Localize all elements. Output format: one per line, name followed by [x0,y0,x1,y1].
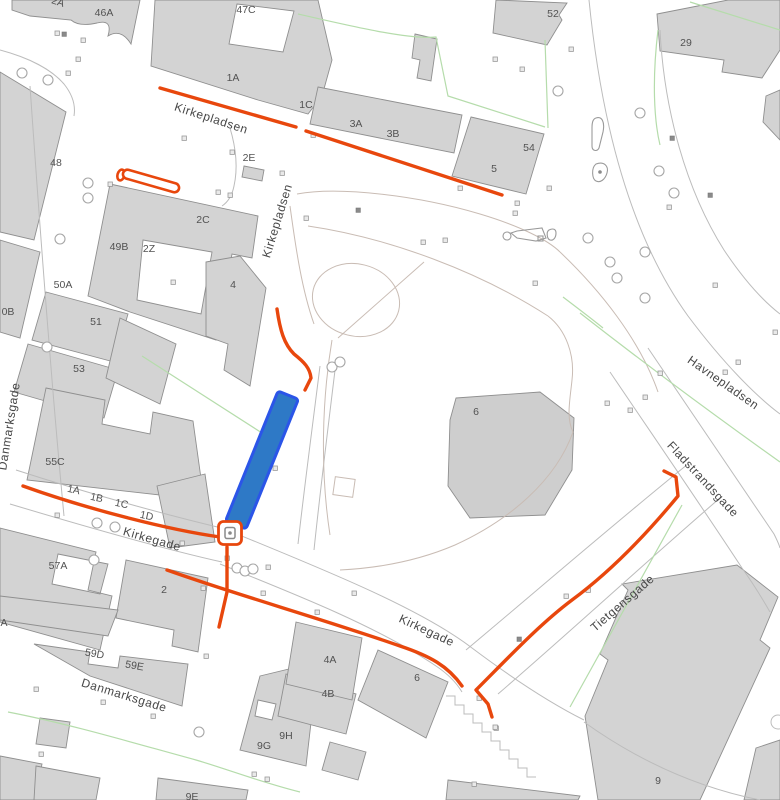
building-number: 0B [2,306,15,318]
building-number: 4B [322,688,335,700]
building [493,0,567,45]
building-number: 5 [491,163,497,175]
building-number: 1A [66,483,81,497]
building-number: 9H [279,730,292,742]
building-number: 2E [243,152,256,164]
building-number: 2Z [143,243,156,255]
building [12,0,140,44]
building [116,560,208,652]
map-canvas[interactable]: Kirkepladsen Kirkepladsen Danmarksgade K… [0,0,780,800]
building [206,256,266,386]
street-label-kirkepladsen: Kirkepladsen [173,100,250,137]
building [156,778,248,800]
building-number: 55C [45,456,65,468]
shield-icon [547,229,556,240]
building-number: 51 [90,316,102,328]
building-number: 47C [236,4,256,16]
route-segment[interactable] [277,309,311,390]
church-building [448,392,574,518]
building [0,240,40,338]
street-label-kirkepladsen-vertical: Kirkepladsen [259,182,295,259]
building [310,87,462,153]
building-number: 3B [387,128,400,140]
street-label-danmarksgade-west: Danmarksgade [0,382,23,472]
building [446,780,580,800]
street-label-havnepladsen: Havnepladsen [685,353,762,413]
building-number: 2C [196,214,210,226]
building-number: 6 [414,672,420,684]
building [657,0,780,78]
buildings-layer [0,0,780,800]
building-number: 4 [230,279,236,291]
building-number: 50A [54,279,73,291]
building-number: 1C [299,99,313,111]
building-number: 2 [161,584,167,596]
selected-segment-highlight[interactable] [226,391,299,529]
building-number: 48 [50,157,62,169]
building [358,650,448,738]
building-number: 57A [49,560,68,572]
building-number: 29 [680,37,692,49]
building-number: 54 [523,142,535,154]
building-number: 6 [473,406,479,418]
building [242,166,264,181]
building-number: 9E [186,791,199,800]
building-number: 1A [227,72,240,84]
street-label-kirkegade-lower: Kirkegade [397,611,457,649]
building-number: 1B [89,491,104,505]
building [322,742,366,780]
building [0,72,66,240]
building-number: A [0,617,7,629]
playground-icon [503,228,546,241]
building-number: 52 [547,8,559,20]
building [34,766,100,800]
building-number: 4A [324,654,337,666]
building [36,718,70,748]
building [744,740,780,800]
map-svg: Kirkepladsen Kirkepladsen Danmarksgade K… [0,0,780,800]
building-number: 9 [655,775,661,787]
building-number: 3A [350,118,363,130]
island-dot [598,170,602,174]
building-number: 9G [257,740,271,752]
building-number: 46A [95,7,114,19]
island-shape [592,118,604,151]
building [151,0,332,114]
route-marker-icon[interactable] [219,522,242,545]
building [763,90,780,140]
building-number: 49B [110,241,129,253]
building-number: 1C [114,497,130,512]
building [412,34,437,81]
building-number: 53 [73,363,85,375]
